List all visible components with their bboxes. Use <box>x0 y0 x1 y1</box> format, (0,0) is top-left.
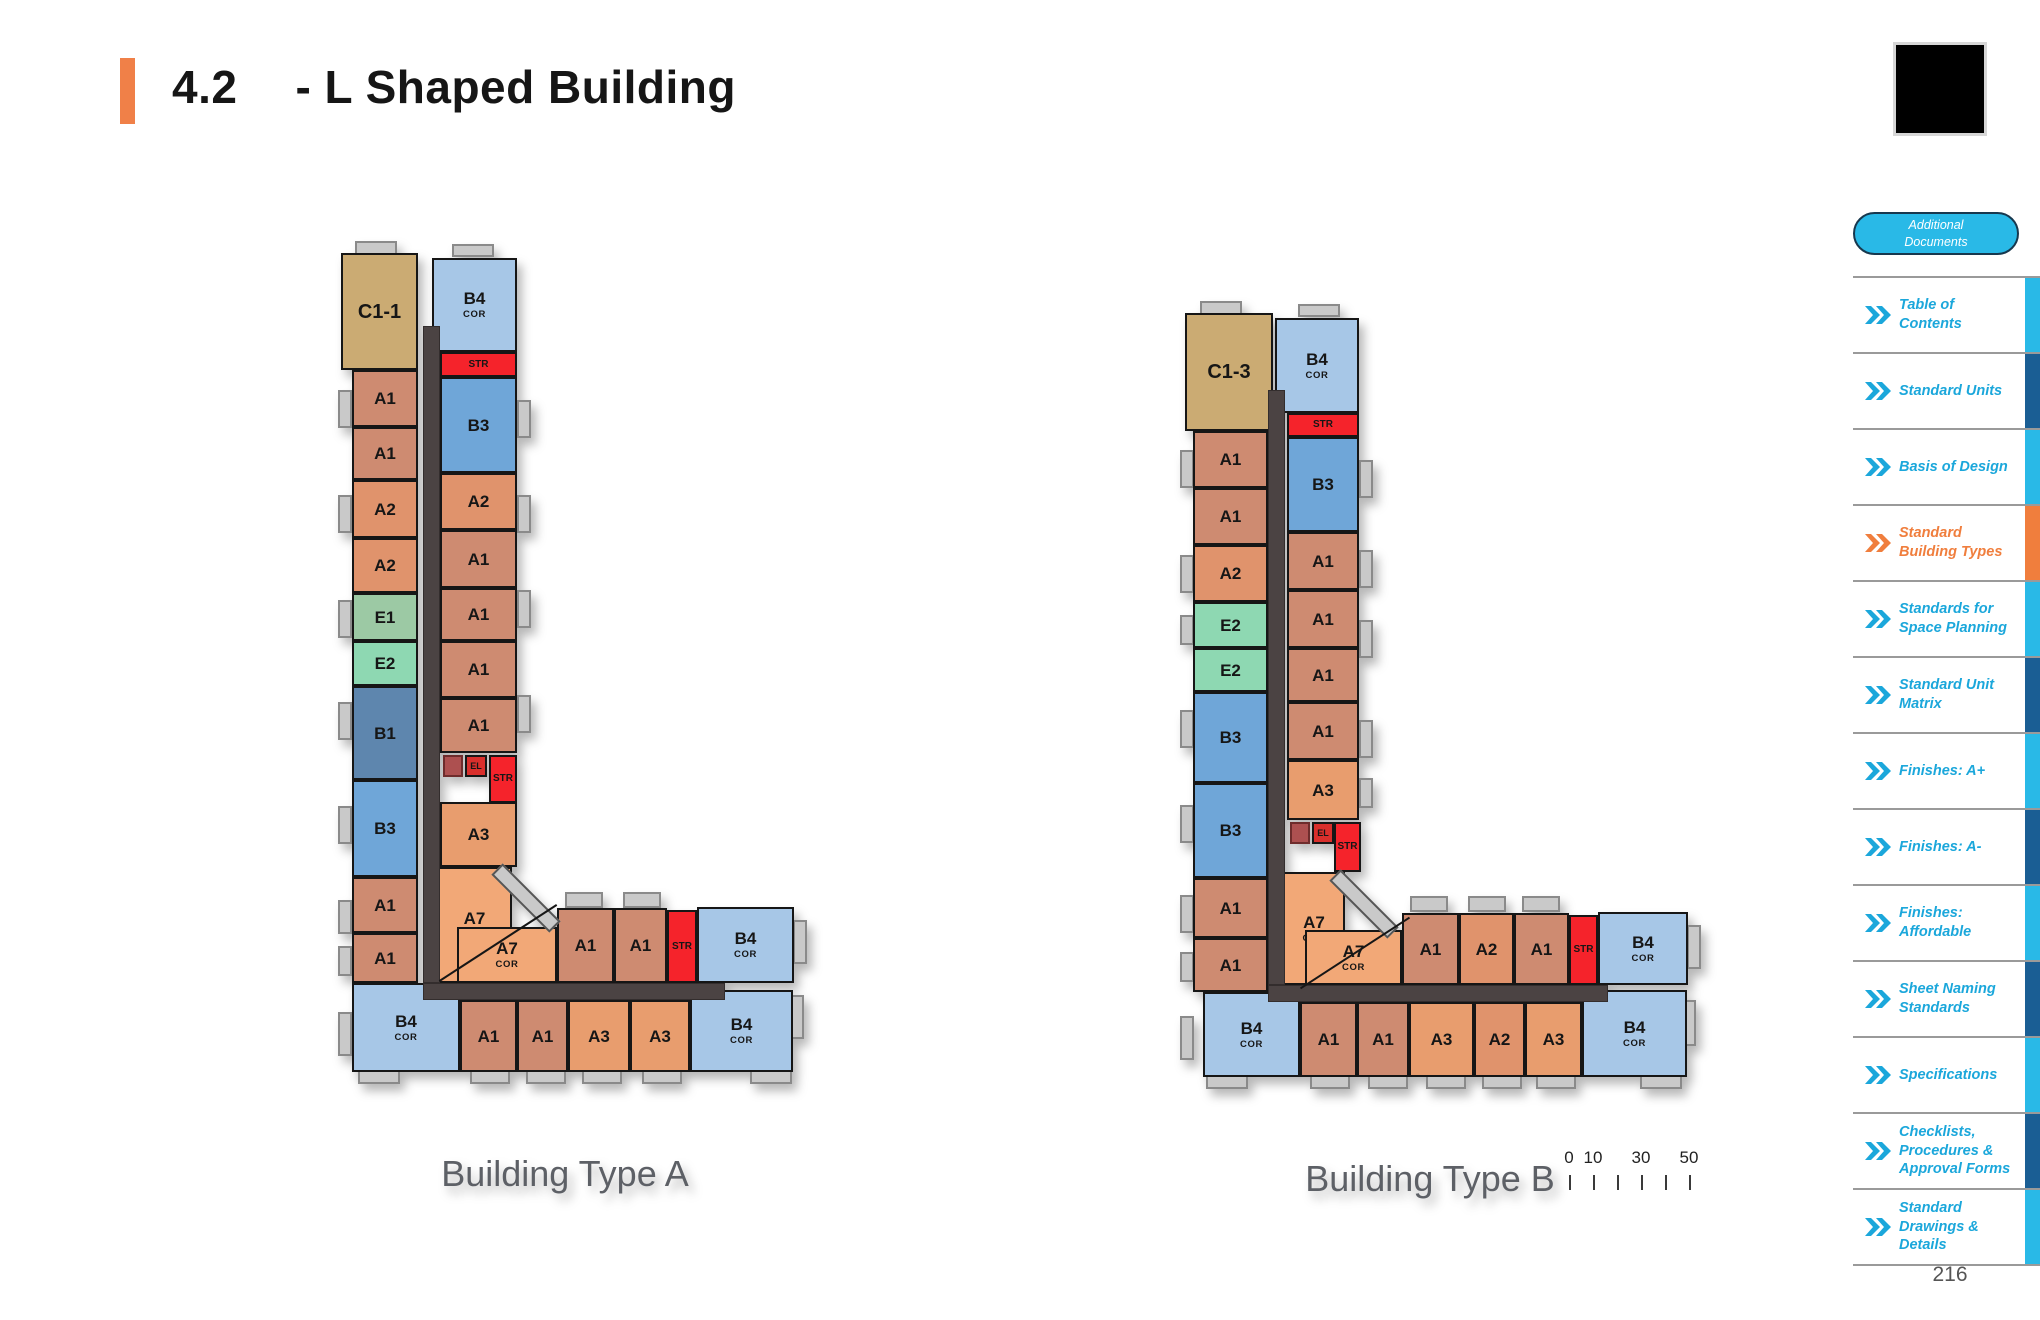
scale-tick <box>1689 1175 1691 1190</box>
room-label: B4 <box>1632 934 1654 951</box>
double-chevron-icon <box>1861 1139 1895 1163</box>
balcony-deck <box>1640 1075 1682 1089</box>
sidebar-item-tab <box>2025 582 2040 656</box>
building-caption: Building Type A <box>441 1153 689 1195</box>
room-a1: A1 <box>440 588 517 641</box>
sidebar-item-tab <box>2025 658 2040 732</box>
balcony-deck <box>1180 555 1194 593</box>
balcony-deck <box>642 1070 682 1084</box>
room-e2: E2 <box>352 641 418 686</box>
room-c1-1: C1-1 <box>341 253 418 370</box>
room-b1: B1 <box>352 686 418 780</box>
room-label: B4 <box>731 1016 753 1033</box>
sidebar-item-label: Specifications <box>1899 1066 2015 1085</box>
room-service <box>1290 822 1310 844</box>
double-chevron-icon <box>1861 531 1895 555</box>
room-label: B4 <box>464 290 486 307</box>
balcony-deck <box>1482 1075 1522 1089</box>
room-label: A2 <box>374 557 396 574</box>
double-chevron-icon <box>1861 987 1895 1011</box>
room-label: A1 <box>468 551 490 568</box>
balcony-deck <box>338 1012 352 1056</box>
room-label: A2 <box>1220 565 1242 582</box>
balcony-deck <box>1536 1075 1576 1089</box>
balcony-deck <box>338 806 352 844</box>
room-a2: A2 <box>352 480 418 538</box>
room-sublabel: COR <box>1623 1039 1646 1049</box>
title-accent-bar <box>120 58 135 124</box>
room-label: A1 <box>468 661 490 678</box>
room-a2: A2 <box>1193 545 1268 602</box>
room-label: E1 <box>375 609 396 626</box>
room-a3: A3 <box>568 1000 630 1072</box>
room-b3: B3 <box>1287 437 1359 532</box>
balcony-deck <box>1359 550 1373 588</box>
room-a3: A3 <box>440 802 517 867</box>
pill-line2: Documents <box>1904 234 1967 250</box>
balcony-deck <box>1180 952 1194 982</box>
corridor <box>1268 985 1608 1002</box>
room-label: A1 <box>374 950 396 967</box>
room-a2: A2 <box>440 473 517 530</box>
room-a1: A1 <box>352 370 418 427</box>
room-a1: A1 <box>440 641 517 698</box>
sidebar-item-specifications[interactable]: Specifications <box>1853 1036 2040 1112</box>
room-label: A1 <box>1220 508 1242 525</box>
room-a2: A2 <box>1474 1002 1525 1077</box>
room-label: A1 <box>374 445 396 462</box>
room-a1: A1 <box>1287 648 1359 702</box>
room-label: B1 <box>374 725 396 742</box>
room-label: A1 <box>468 606 490 623</box>
scale-label: 0 <box>1564 1148 1573 1168</box>
sidebar-item-tab <box>2025 886 2040 960</box>
room-label: A2 <box>468 493 490 510</box>
room-sublabel: COR <box>395 1033 418 1043</box>
scale-bar: 0103050 <box>1563 1148 1723 1198</box>
double-chevron-icon <box>1861 455 1895 479</box>
room-a1: A1 <box>1287 590 1359 648</box>
balcony-deck <box>338 390 352 428</box>
balcony-deck <box>358 1070 400 1084</box>
sidebar-item-tab <box>2025 1038 2040 1112</box>
balcony-deck <box>565 892 603 908</box>
room-b4: B4COR <box>697 907 794 983</box>
building-type-b: C1-3A1A1A2E2E2B3B3A1A1B4CORSTRB3A1A1A1A1… <box>1170 300 1690 1080</box>
room-sublabel: COR <box>730 1036 753 1046</box>
balcony-deck <box>1180 450 1194 488</box>
sidebar-item-checklists-procedures-approval-forms[interactable]: Checklists, Procedures & Approval Forms <box>1853 1112 2040 1188</box>
room-a3: A3 <box>1409 1002 1474 1077</box>
room-b3: B3 <box>1193 783 1268 878</box>
room-label: B3 <box>1220 822 1242 839</box>
room-a1: A1 <box>1287 532 1359 590</box>
room-label: A1 <box>1420 941 1442 958</box>
room-a1: A1 <box>517 1000 568 1072</box>
sidebar-item-label: Standard Unit Matrix <box>1899 676 2015 714</box>
room-a1: A1 <box>1193 938 1268 992</box>
balcony-deck <box>338 495 352 533</box>
double-chevron-icon <box>1861 759 1895 783</box>
room-a3: A3 <box>1287 760 1359 820</box>
room-label: A1 <box>1220 900 1242 917</box>
room-str: STR <box>1334 822 1361 872</box>
scale-label: 10 <box>1584 1148 1603 1168</box>
balcony-deck <box>452 244 494 257</box>
room-label: A1 <box>575 937 597 954</box>
room-label: B4 <box>735 930 757 947</box>
document-page: { "header": {"section": "4.2", "title": … <box>0 0 2040 1320</box>
room-a1: A1 <box>1287 702 1359 760</box>
section-number: 4.2 <box>172 60 237 114</box>
room-e2: E2 <box>1193 602 1268 648</box>
corridor <box>423 326 440 983</box>
sidebar-item-standard-unit-matrix[interactable]: Standard Unit Matrix <box>1853 656 2040 732</box>
room-e2: E2 <box>1193 648 1268 692</box>
double-chevron-icon <box>1861 835 1895 859</box>
sidebar-item-tab <box>2025 1190 2040 1264</box>
balcony-deck <box>1180 895 1194 933</box>
sidebar-list: Table of ContentsStandard UnitsBasis of … <box>1853 276 2040 1266</box>
balcony-deck <box>793 920 807 964</box>
room-sublabel: COR <box>496 960 519 970</box>
sidebar-item-label: Finishes: A- <box>1899 838 2015 857</box>
room-b3: B3 <box>440 377 517 473</box>
balcony-deck <box>1687 925 1701 969</box>
room-label: A3 <box>1312 782 1334 799</box>
room-label: A3 <box>468 826 490 843</box>
additional-documents-button[interactable]: Additional Documents <box>1853 212 2019 255</box>
room-sublabel: COR <box>463 310 486 320</box>
balcony-deck <box>1359 620 1373 658</box>
balcony-deck <box>1310 1075 1350 1089</box>
sidebar-item-tab <box>2025 1114 2040 1188</box>
room-str: STR <box>440 352 517 377</box>
room-a1: A1 <box>1300 1002 1357 1077</box>
room-label: B4 <box>1241 1020 1263 1037</box>
room-service <box>443 755 463 777</box>
sidebar-item-basis-of-design[interactable]: Basis of Design <box>1853 428 2040 504</box>
room-label: E2 <box>1220 662 1241 679</box>
sidebar: Additional Documents Table of ContentsSt… <box>1853 0 2040 1320</box>
room-label: C1-1 <box>358 302 401 322</box>
sidebar-item-standard-units[interactable]: Standard Units <box>1853 352 2040 428</box>
sidebar-item-sheet-naming-standards[interactable]: Sheet Naming Standards <box>1853 960 2040 1036</box>
balcony-deck <box>1522 896 1560 912</box>
double-chevron-icon <box>1861 1063 1895 1087</box>
room-str: STR <box>1287 413 1359 437</box>
room-a1: A1 <box>460 1000 517 1072</box>
room-label: E2 <box>375 655 396 672</box>
room-b4: B4COR <box>1203 992 1300 1077</box>
sidebar-item-table-of-contents[interactable]: Table of Contents <box>1853 276 2040 352</box>
balcony-deck <box>623 892 661 908</box>
room-a1: A1 <box>1357 1002 1409 1077</box>
building-type-a: C1-1A1A1A2A2E1E2B1B3A1A1B4CORSTRB3A2A1A1… <box>330 240 800 1075</box>
room-label: A1 <box>1531 941 1553 958</box>
balcony-deck <box>1180 1016 1194 1060</box>
double-chevron-icon <box>1861 911 1895 935</box>
balcony-deck <box>338 900 352 934</box>
sidebar-item-tab <box>2025 810 2040 884</box>
sidebar-item-tab <box>2025 962 2040 1036</box>
room-label: STR <box>1574 945 1594 955</box>
room-sublabel: COR <box>734 950 757 960</box>
double-chevron-icon <box>1861 683 1895 707</box>
pill-line1: Additional <box>1909 217 1964 233</box>
sidebar-item-label: Standard Drawings & Details <box>1899 1199 2015 1256</box>
room-a1: A1 <box>352 427 418 480</box>
page-title: 4.2- L Shaped Building <box>172 60 736 114</box>
sidebar-item-finishes-a[interactable]: Finishes: A+ <box>1853 732 2040 808</box>
room-label: A1 <box>1372 1031 1394 1048</box>
balcony-deck <box>517 495 531 533</box>
room-label: B3 <box>468 417 490 434</box>
room-label: A1 <box>1318 1031 1340 1048</box>
double-chevron-icon <box>1861 1215 1895 1239</box>
sidebar-item-standard-drawings-details[interactable]: Standard Drawings & Details <box>1853 1188 2040 1266</box>
balcony-deck <box>1368 1075 1408 1089</box>
sidebar-item-label: Standard Building Types <box>1899 524 2015 562</box>
room-label: A1 <box>630 937 652 954</box>
sidebar-item-tab <box>2025 734 2040 808</box>
balcony-deck <box>750 1070 792 1084</box>
room-a1: A1 <box>1193 488 1268 545</box>
room-label: A1 <box>1312 611 1334 628</box>
room-label: A3 <box>1431 1031 1453 1048</box>
scale-tick <box>1665 1175 1667 1190</box>
room-label: B3 <box>1312 476 1334 493</box>
scale-tick <box>1617 1175 1619 1190</box>
room-sublabel: COR <box>1306 371 1329 381</box>
sidebar-item-label: Finishes: A+ <box>1899 762 2015 781</box>
sidebar-item-label: Table of Contents <box>1899 296 2015 334</box>
room-label: A1 <box>1312 667 1334 684</box>
scale-tick <box>1569 1175 1571 1190</box>
room-el: EL <box>1312 822 1334 844</box>
room-a1: A1 <box>1402 913 1459 985</box>
sidebar-item-tab <box>2025 430 2040 504</box>
room-sublabel: COR <box>1342 963 1365 973</box>
balcony-deck <box>1426 1075 1466 1089</box>
room-label: STR <box>1313 420 1333 430</box>
balcony-deck <box>517 695 531 733</box>
room-b4: B4COR <box>432 258 517 352</box>
room-label: E2 <box>1220 617 1241 634</box>
room-a2: A2 <box>1459 913 1514 985</box>
sidebar-item-finishes-affordable[interactable]: Finishes: Affordable <box>1853 884 2040 960</box>
room-label: B4 <box>1624 1019 1646 1036</box>
room-a1: A1 <box>440 698 517 753</box>
room-label: STR <box>469 360 489 370</box>
room-a2: A2 <box>352 538 418 593</box>
balcony-deck <box>1468 896 1506 912</box>
scale-tick <box>1641 1175 1643 1190</box>
room-b3: B3 <box>352 780 418 877</box>
sidebar-item-tab <box>2025 354 2040 428</box>
scale-tick <box>1593 1175 1595 1190</box>
room-b3: B3 <box>1193 692 1268 783</box>
room-a1: A1 <box>352 877 418 933</box>
room-a1: A1 <box>1514 913 1569 985</box>
room-c1-3: C1-3 <box>1185 313 1273 431</box>
balcony-deck <box>517 590 531 628</box>
balcony-deck <box>1359 460 1373 498</box>
room-label: A1 <box>1220 957 1242 974</box>
sidebar-item-standards-for-space-planning[interactable]: Standards for Space Planning <box>1853 580 2040 656</box>
room-label: A2 <box>374 501 396 518</box>
room-a1: A1 <box>440 530 517 588</box>
balcony-deck <box>1206 1075 1248 1089</box>
room-label: STR <box>672 942 692 952</box>
balcony-deck <box>470 1070 510 1084</box>
room-label: A3 <box>588 1028 610 1045</box>
double-chevron-icon <box>1861 607 1895 631</box>
room-a1: A1 <box>557 908 614 983</box>
room-label: EL <box>1317 829 1329 838</box>
sidebar-item-label: Standards for Space Planning <box>1899 600 2015 638</box>
room-label: C1-3 <box>1207 362 1250 382</box>
room-label: A1 <box>374 897 396 914</box>
room-label: A1 <box>374 390 396 407</box>
room-b4: B4COR <box>1582 990 1687 1077</box>
corridor <box>1268 390 1285 985</box>
sidebar-item-label: Checklists, Procedures & Approval Forms <box>1899 1123 2015 1180</box>
room-e1: E1 <box>352 593 418 641</box>
room-b4: B4COR <box>1275 318 1359 413</box>
room-a1: A1 <box>1193 431 1268 488</box>
double-chevron-icon <box>1861 379 1895 403</box>
room-b4: B4COR <box>690 990 793 1072</box>
room-label: A1 <box>1312 553 1334 570</box>
building-caption: Building Type B <box>1305 1158 1555 1200</box>
balcony-deck <box>338 600 352 638</box>
room-label: STR <box>1338 842 1358 852</box>
room-a1: A1 <box>352 933 418 983</box>
room-a1: A1 <box>614 908 667 983</box>
room-sublabel: COR <box>1240 1040 1263 1050</box>
scale-label: 50 <box>1680 1148 1699 1168</box>
balcony-deck <box>1410 896 1448 912</box>
room-label: B3 <box>1220 729 1242 746</box>
balcony-deck <box>1180 615 1194 645</box>
room-str: STR <box>1569 915 1598 985</box>
room-sublabel: COR <box>1632 954 1655 964</box>
balcony-deck <box>1180 710 1194 748</box>
sidebar-item-label: Finishes: Affordable <box>1899 904 2015 942</box>
balcony-deck <box>526 1070 566 1084</box>
room-label: A3 <box>1543 1031 1565 1048</box>
sidebar-item-tab <box>2025 506 2040 580</box>
page-number: 216 <box>1915 1263 1985 1287</box>
room-label: A3 <box>649 1028 671 1045</box>
scale-label: 30 <box>1632 1148 1651 1168</box>
room-a3: A3 <box>1525 1002 1582 1077</box>
balcony-deck <box>1298 304 1340 317</box>
room-label: A1 <box>468 717 490 734</box>
room-label: B3 <box>374 820 396 837</box>
room-label: A2 <box>1489 1031 1511 1048</box>
balcony-deck <box>1359 778 1373 808</box>
room-label: A2 <box>1476 941 1498 958</box>
sidebar-item-standard-building-types[interactable]: Standard Building Types <box>1853 504 2040 580</box>
room-label: B4 <box>1306 351 1328 368</box>
corridor <box>423 983 725 1000</box>
room-b4: B4COR <box>1598 912 1688 985</box>
room-label: STR <box>493 774 513 784</box>
room-label: B4 <box>395 1013 417 1030</box>
balcony-deck <box>1359 720 1373 758</box>
room-label: A7 <box>1303 914 1325 931</box>
room-str: STR <box>489 755 517 803</box>
section-title: - L Shaped Building <box>295 61 736 113</box>
room-label: A1 <box>532 1028 554 1045</box>
sidebar-item-label: Basis of Design <box>1899 458 2015 477</box>
room-label: A1 <box>1220 451 1242 468</box>
room-label: A1 <box>1312 723 1334 740</box>
room-el: EL <box>465 755 487 777</box>
balcony-deck <box>517 400 531 438</box>
room-str: STR <box>667 910 697 983</box>
balcony-deck <box>1180 805 1194 843</box>
sidebar-item-label: Standard Units <box>1899 382 2015 401</box>
room-a3: A3 <box>630 1000 690 1072</box>
room-a1: A1 <box>1193 878 1268 938</box>
balcony-deck <box>338 702 352 740</box>
balcony-deck <box>338 946 352 976</box>
double-chevron-icon <box>1861 303 1895 327</box>
sidebar-item-label: Sheet Naming Standards <box>1899 980 2015 1018</box>
room-label: A1 <box>478 1028 500 1045</box>
sidebar-item-finishes-a[interactable]: Finishes: A- <box>1853 808 2040 884</box>
room-label: EL <box>470 762 482 771</box>
balcony-deck <box>582 1070 622 1084</box>
sidebar-item-tab <box>2025 278 2040 352</box>
room-label: A7 <box>464 910 486 927</box>
